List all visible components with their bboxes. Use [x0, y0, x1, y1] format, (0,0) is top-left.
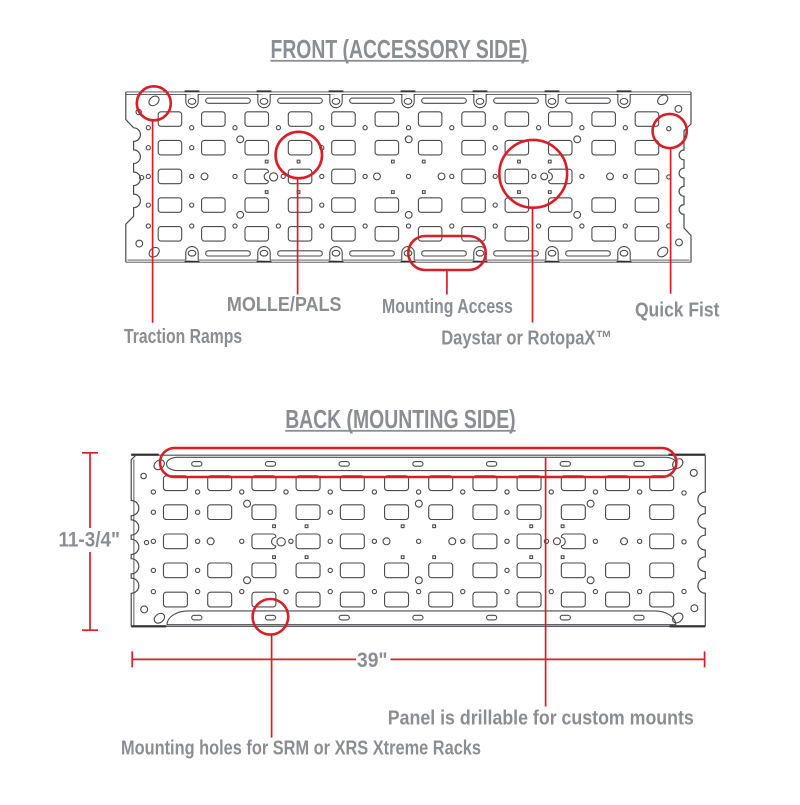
- svg-text:39": 39": [357, 649, 388, 672]
- svg-text:Daystar or RotopaX™: Daystar or RotopaX™: [441, 328, 612, 350]
- svg-text:MOLLE/PALS: MOLLE/PALS: [227, 294, 342, 316]
- svg-text:Mounting Access: Mounting Access: [382, 296, 513, 318]
- svg-text:BACK (MOUNTING SIDE): BACK (MOUNTING SIDE): [285, 404, 515, 434]
- svg-text:Traction Ramps: Traction Ramps: [124, 326, 242, 348]
- svg-text:Panel is drillable for custom: Panel is drillable for custom mounts: [388, 707, 694, 729]
- svg-text:FRONT (ACCESSORY SIDE): FRONT (ACCESSORY SIDE): [271, 34, 528, 64]
- svg-text:11-3/4": 11-3/4": [58, 529, 120, 552]
- svg-text:Quick Fist: Quick Fist: [635, 299, 720, 321]
- svg-text:Mounting holes for SRM or XRS: Mounting holes for SRM or XRS Xtreme Rac…: [121, 738, 481, 760]
